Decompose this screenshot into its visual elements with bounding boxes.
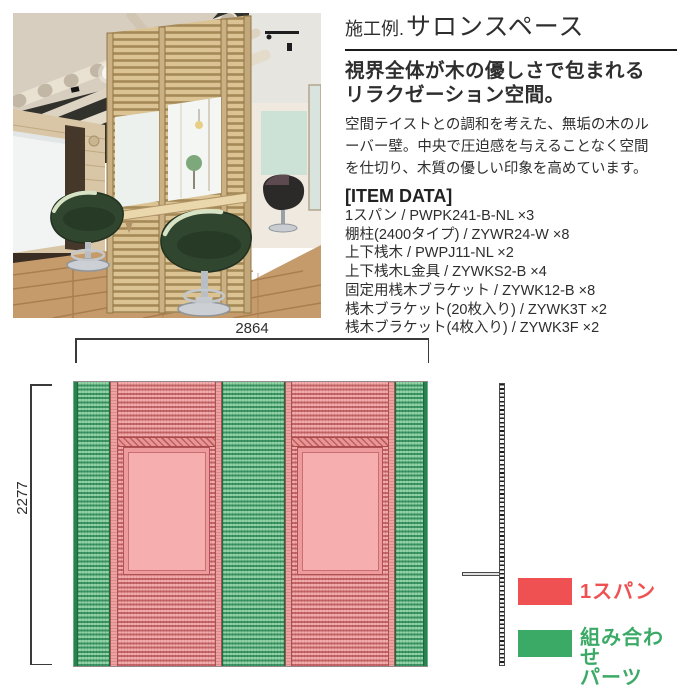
title-divider xyxy=(345,49,677,51)
item-data-heading: [ITEM DATA] xyxy=(345,186,677,207)
subtitle-line-2: リラクゼーション空間。 xyxy=(345,83,677,107)
salon-photo xyxy=(13,13,321,318)
background-room xyxy=(249,13,321,248)
legend-combo-label: 組み合わせ パーツ xyxy=(580,628,680,688)
item-data-list: 1スパン / PWPK241-B-NL ×3 棚柱(2400タイプ) / ZYW… xyxy=(345,207,677,338)
page-title: 施工例. サロンスペース xyxy=(345,7,677,43)
subtitle-line-1: 視界全体が木の優しさで包まれる xyxy=(345,59,677,83)
span-hatch-band xyxy=(292,437,388,447)
item-line: 上下桟木L金具 / ZYWKS2-B ×4 xyxy=(345,263,677,282)
span-post xyxy=(110,382,118,666)
title-prefix: 施工例. xyxy=(345,15,404,41)
subtitle: 視界全体が木の優しさで包まれる リラクゼーション空間。 xyxy=(345,59,677,107)
span-post xyxy=(388,382,395,666)
width-dimension-tick-left xyxy=(75,338,77,363)
item-line: 上下桟木 / PWPJ11-NL ×2 xyxy=(345,244,677,263)
span-panel xyxy=(118,382,215,666)
span-window-glass xyxy=(128,452,206,571)
span-panel xyxy=(292,382,388,666)
side-view-bracket-arm xyxy=(462,572,500,576)
description-line-3: を仕切り、木質の優しい印象を高めています。 xyxy=(345,158,677,180)
width-dimension-label: 2864 xyxy=(75,320,429,337)
legend-combo-label-line2: パーツ xyxy=(580,668,680,688)
text-column: 施工例. サロンスペース 視界全体が木の優しさで包まれる リラクゼーション空間。… xyxy=(345,7,677,338)
span-post xyxy=(215,382,222,666)
combo-panel xyxy=(77,382,110,666)
height-dimension-tick-bottom xyxy=(30,664,52,666)
description-line-1: 空間テイストとの調和を考えた、無垢の木のル xyxy=(345,114,677,136)
span-window-glass xyxy=(302,452,379,571)
title-main: サロンスペース xyxy=(406,7,585,43)
wall-elevation-diagram xyxy=(73,382,428,666)
legend-span-label: 1スパン xyxy=(580,582,656,602)
height-dimension-tick-top xyxy=(30,384,52,386)
span-window xyxy=(297,447,383,575)
combo-panel xyxy=(222,382,285,666)
side-view-shelf-post xyxy=(499,383,505,666)
span-window xyxy=(123,447,210,575)
description-line-2: ーバー壁。中央で圧迫感を与えることなく空間 xyxy=(345,136,677,158)
louver-partition xyxy=(107,15,251,313)
legend-combo-swatch xyxy=(518,630,572,657)
item-line: 固定用桟木ブラケット / ZYWK12-B ×8 xyxy=(345,282,677,301)
width-dimension-line xyxy=(75,338,429,340)
item-line: 桟木ブラケット(20枚入り) / ZYWK3T ×2 xyxy=(345,301,677,320)
legend-span-swatch xyxy=(518,578,572,605)
span-hatch-band xyxy=(118,437,215,447)
left-wall xyxy=(13,109,105,267)
span-post xyxy=(285,382,292,666)
wall-edge-right xyxy=(424,382,428,666)
legend-combo-label-line1: 組み合わせ xyxy=(580,628,680,668)
item-line: 棚柱(2400タイプ) / ZYWR24-W ×8 xyxy=(345,226,677,245)
description: 空間テイストとの調和を考えた、無垢の木のル ーバー壁。中央で圧迫感を与えることな… xyxy=(345,114,677,180)
item-line: 1スパン / PWPK241-B-NL ×3 xyxy=(345,207,677,226)
height-dimension-line xyxy=(30,384,32,665)
width-dimension-tick-right xyxy=(428,338,430,363)
salon-photo-art xyxy=(13,13,321,318)
height-dimension-label: 2277 xyxy=(14,476,30,520)
combo-panel xyxy=(395,382,424,666)
